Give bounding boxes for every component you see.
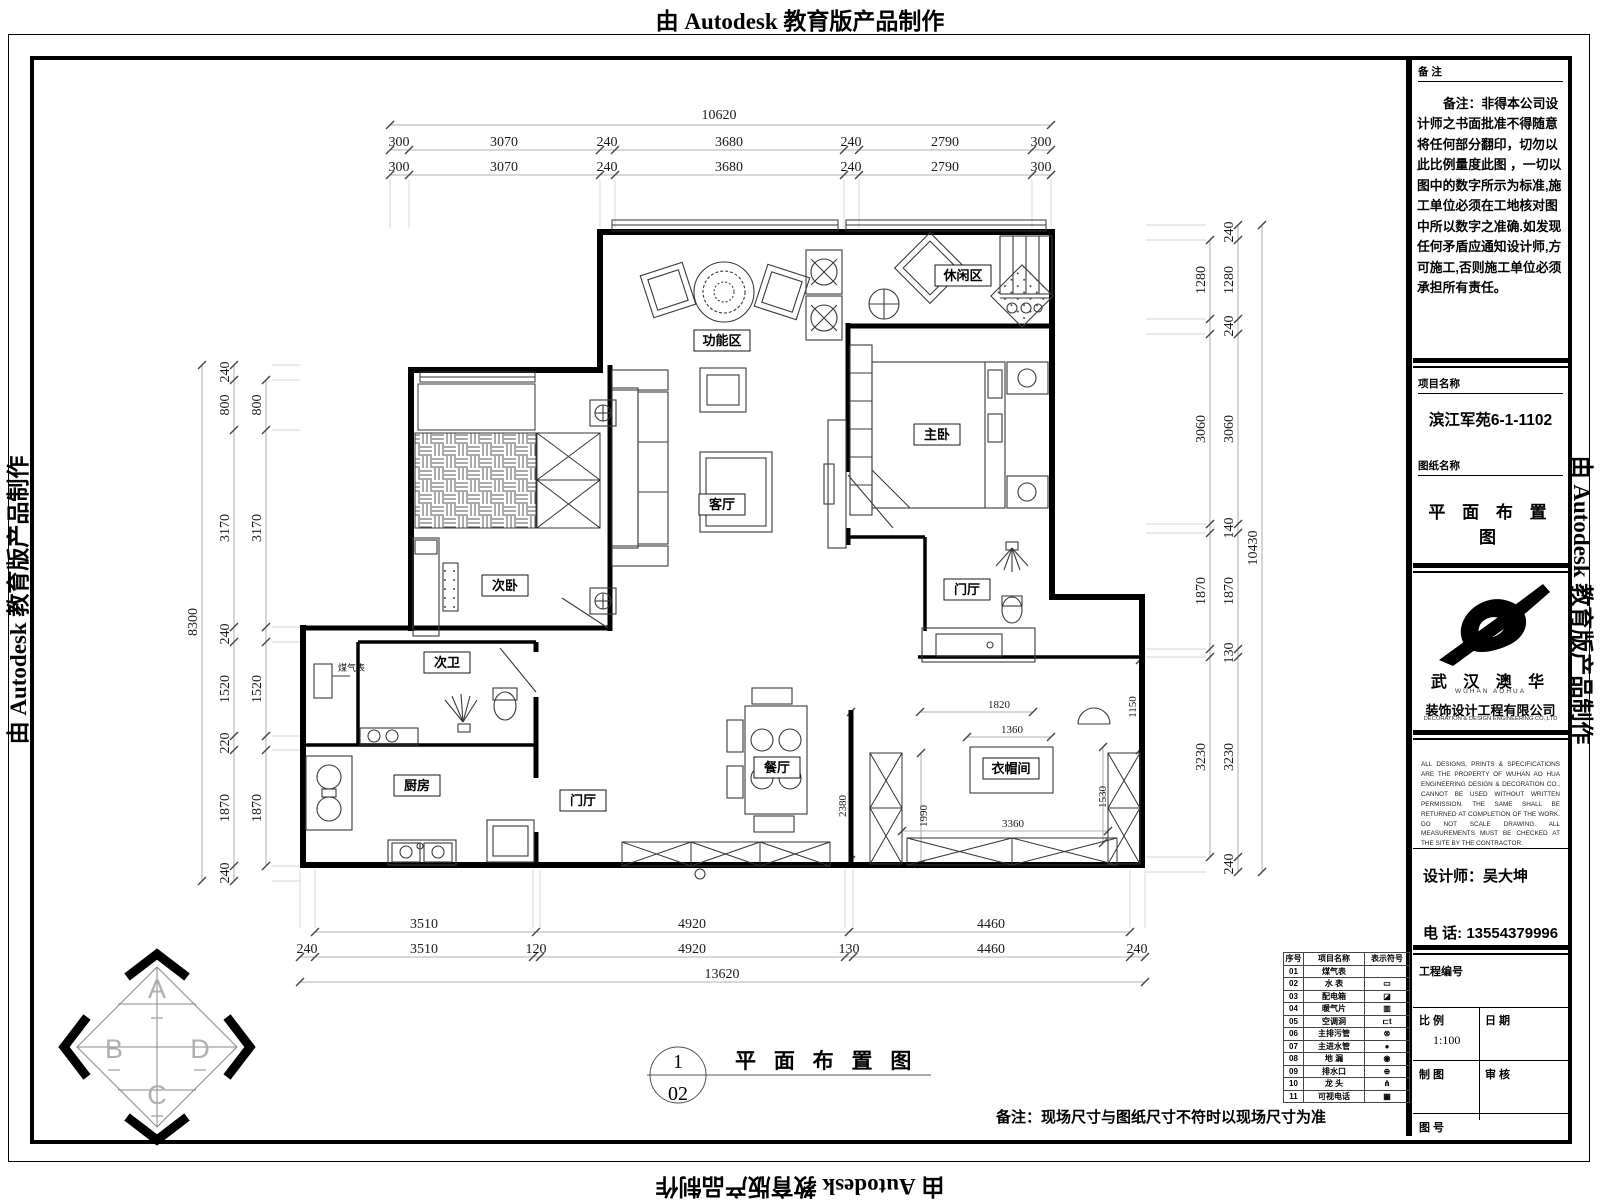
svg-text:3680: 3680	[715, 135, 743, 150]
room-label-ciwo: 次卧	[492, 578, 518, 593]
svg-text:1820: 1820	[988, 699, 1011, 711]
svg-text:240: 240	[1222, 222, 1237, 243]
room-label-canting: 餐厅	[763, 760, 790, 775]
legend-row: 11可视电话▦	[1284, 1090, 1410, 1103]
svg-text:4460: 4460	[977, 942, 1005, 957]
legend-row: 08地 漏◉	[1284, 1053, 1410, 1066]
compass-b: B	[105, 1034, 123, 1064]
floor-plan: 煤气表 功能区 休闲区 主卧 客厅 次卧 门厅 次卫 厨房 门厅 餐厅 衣帽间 …	[180, 95, 1280, 1000]
svg-text:2790: 2790	[931, 160, 959, 175]
designer: 设计师：吴大坤	[1423, 865, 1528, 886]
watermark-top: 由 Autodesk 教育版产品制作	[656, 2, 945, 36]
svg-text:1520: 1520	[218, 675, 233, 703]
project-label: 项目名称	[1418, 376, 1563, 394]
svg-text:3170: 3170	[250, 514, 265, 542]
svg-text:3360: 3360	[1002, 818, 1025, 830]
legend-row: 10龙 头⋔	[1284, 1078, 1410, 1091]
svg-text:10430: 10430	[1246, 531, 1261, 566]
svg-text:3060: 3060	[1222, 415, 1237, 443]
scale-label: 比 例	[1419, 1012, 1444, 1028]
legend-table: 序号 项目名称 表示符号 01煤气表 02水 表▭ 03配电箱◪ 04暖气片▥ …	[1283, 952, 1410, 1103]
drawing-sheet: { "watermark": "由 Autodesk 教育版产品制作", "si…	[0, 0, 1600, 1200]
svg-text:240: 240	[218, 863, 233, 884]
svg-text:240: 240	[597, 160, 618, 175]
scale-value: 1:100	[1433, 1033, 1460, 1048]
room-label-menting-lower: 门厅	[570, 793, 596, 808]
svg-text:300: 300	[1031, 160, 1052, 175]
svg-text:4460: 4460	[977, 917, 1005, 932]
figure-title: 1 02 平 面 布 置 图	[645, 1038, 935, 1112]
svg-text:300: 300	[389, 160, 410, 175]
svg-text:800: 800	[218, 395, 233, 416]
legend-row: 09排水口⊕	[1284, 1065, 1410, 1078]
room-label-gongnengqu: 功能区	[702, 333, 741, 348]
figure-title-text: 平 面 布 置 图	[735, 1049, 917, 1073]
svg-text:1990: 1990	[918, 805, 930, 828]
room-label-keting: 客厅	[709, 497, 735, 512]
notes-body: 备注：非得本公司设计师之书面批准不得随意将任何部分翻印，切勿以此比例量度此图 ，…	[1417, 94, 1564, 299]
sheet-number: 02	[668, 1083, 688, 1105]
svg-text:300: 300	[389, 135, 410, 150]
svg-text:240: 240	[218, 624, 233, 645]
drawing-label: 图纸名称	[1418, 458, 1563, 476]
svg-text:2790: 2790	[931, 135, 959, 150]
svg-text:240: 240	[841, 160, 862, 175]
svg-text:800: 800	[250, 395, 265, 416]
company-en: DECORATION & DESIGN ENGINEERING CO.,LTD	[1413, 716, 1568, 722]
svg-text:3060: 3060	[1194, 415, 1209, 443]
legend-row: 05空调洞⊏t	[1284, 1015, 1410, 1028]
site-note: 备注：现场尺寸与图纸尺寸不符时以现场尺寸为准	[996, 1106, 1326, 1127]
svg-text:300: 300	[1031, 135, 1052, 150]
room-label-yimaojian: 衣帽间	[991, 761, 1030, 776]
compass-a: A	[148, 974, 166, 1004]
legend-row: 01煤气表	[1284, 965, 1410, 978]
svg-text:240: 240	[1127, 942, 1148, 957]
svg-text:1520: 1520	[250, 675, 265, 703]
svg-text:1870: 1870	[1222, 577, 1237, 605]
svg-text:1360: 1360	[1001, 724, 1024, 736]
svg-text:2380: 2380	[837, 795, 849, 818]
svg-text:240: 240	[1222, 854, 1237, 875]
company-logo-icon	[1433, 580, 1551, 666]
svg-text:1150: 1150	[1127, 696, 1139, 718]
svg-text:130: 130	[1222, 643, 1237, 664]
compass-d: D	[190, 1034, 210, 1064]
figure-number: 1	[673, 1051, 683, 1073]
legend-row: 04暖气片▥	[1284, 1003, 1410, 1016]
svg-text:4920: 4920	[678, 917, 706, 932]
parquet-bay	[415, 433, 600, 528]
date-label: 日 期	[1485, 1012, 1510, 1028]
notes-header: 备 注	[1418, 64, 1563, 82]
doors	[500, 475, 893, 879]
svg-text:1870: 1870	[1194, 577, 1209, 605]
svg-text:1530: 1530	[1097, 786, 1109, 809]
room-labels: 功能区 休闲区 主卧 客厅 次卧 门厅 次卫 厨房 门厅 餐厅 衣帽间	[394, 265, 1039, 811]
svg-text:1870: 1870	[218, 794, 233, 822]
svg-text:130: 130	[839, 942, 860, 957]
svg-text:3680: 3680	[715, 160, 743, 175]
watermark-bottom: 由 Autodesk 教育版产品制作	[656, 1172, 945, 1200]
drawing-name: 平 面 布 置 图	[1413, 498, 1568, 548]
legend-row: 02水 表▭	[1284, 978, 1410, 991]
legend-header-no: 序号	[1284, 953, 1304, 966]
svg-text:240: 240	[1222, 316, 1237, 337]
svg-text:3230: 3230	[1194, 743, 1209, 771]
room-label-ciwei: 次卫	[434, 655, 460, 670]
check-label: 审 核	[1485, 1066, 1510, 1082]
svg-text:8300: 8300	[186, 608, 201, 636]
legend-row: 03配电箱◪	[1284, 990, 1410, 1003]
svg-text:1280: 1280	[1222, 266, 1237, 294]
svg-text:3230: 3230	[1222, 743, 1237, 771]
legend-header-name: 项目名称	[1304, 953, 1365, 966]
closets	[622, 753, 1140, 866]
compass-c: C	[147, 1080, 167, 1110]
svg-text:1870: 1870	[250, 794, 265, 822]
svg-text:3070: 3070	[490, 135, 518, 150]
project-no-label: 工程编号	[1419, 963, 1463, 979]
room-label-menting-upper: 门厅	[954, 582, 980, 597]
svg-text:240: 240	[218, 362, 233, 383]
draft-label: 制 图	[1419, 1066, 1444, 1082]
svg-text:1280: 1280	[1194, 266, 1209, 294]
svg-text:140: 140	[1222, 518, 1237, 539]
gas-meter-label: 煤气表	[338, 662, 365, 673]
svg-text:3070: 3070	[490, 160, 518, 175]
phone: 电 话: 13554379996	[1423, 922, 1558, 943]
room-label-chufang: 厨房	[404, 778, 430, 793]
legend-row: 07主进水管●	[1284, 1040, 1410, 1053]
svg-text:240: 240	[297, 942, 318, 957]
svg-text:240: 240	[841, 135, 862, 150]
logo-en: WUHAN AOHUA	[1413, 688, 1568, 695]
svg-text:3510: 3510	[410, 917, 438, 932]
svg-text:4920: 4920	[678, 942, 706, 957]
legend-row: 06主排污管⊗	[1284, 1028, 1410, 1041]
orientation-compass: A B D C	[52, 942, 262, 1152]
svg-text:3510: 3510	[410, 942, 438, 957]
svg-text:3170: 3170	[218, 514, 233, 542]
room-label-zhuwo: 主卧	[924, 427, 950, 442]
disclaimer-text: ALL DESIGNS, PRINTS & SPECIFICATIONS ARE…	[1421, 760, 1560, 849]
svg-text:10620: 10620	[702, 108, 737, 123]
sheet-label: 图 号	[1419, 1119, 1444, 1135]
legend-header-symbol: 表示符号	[1365, 953, 1410, 966]
svg-text:220: 220	[218, 733, 233, 754]
svg-text:240: 240	[597, 135, 618, 150]
project-name: 滨江军苑6-1-1102	[1413, 408, 1568, 430]
dimension-labels: 10620 300 3070 240 3680 240 2790 300 300…	[186, 108, 1261, 982]
svg-text:120: 120	[526, 942, 547, 957]
room-label-xiuxianqu: 休闲区	[942, 268, 982, 283]
svg-text:13620: 13620	[705, 967, 740, 982]
title-block: 备 注 备注：非得本公司设计师之书面批准不得随意将任何部分翻印，切勿以此比例量度…	[1413, 60, 1568, 1136]
